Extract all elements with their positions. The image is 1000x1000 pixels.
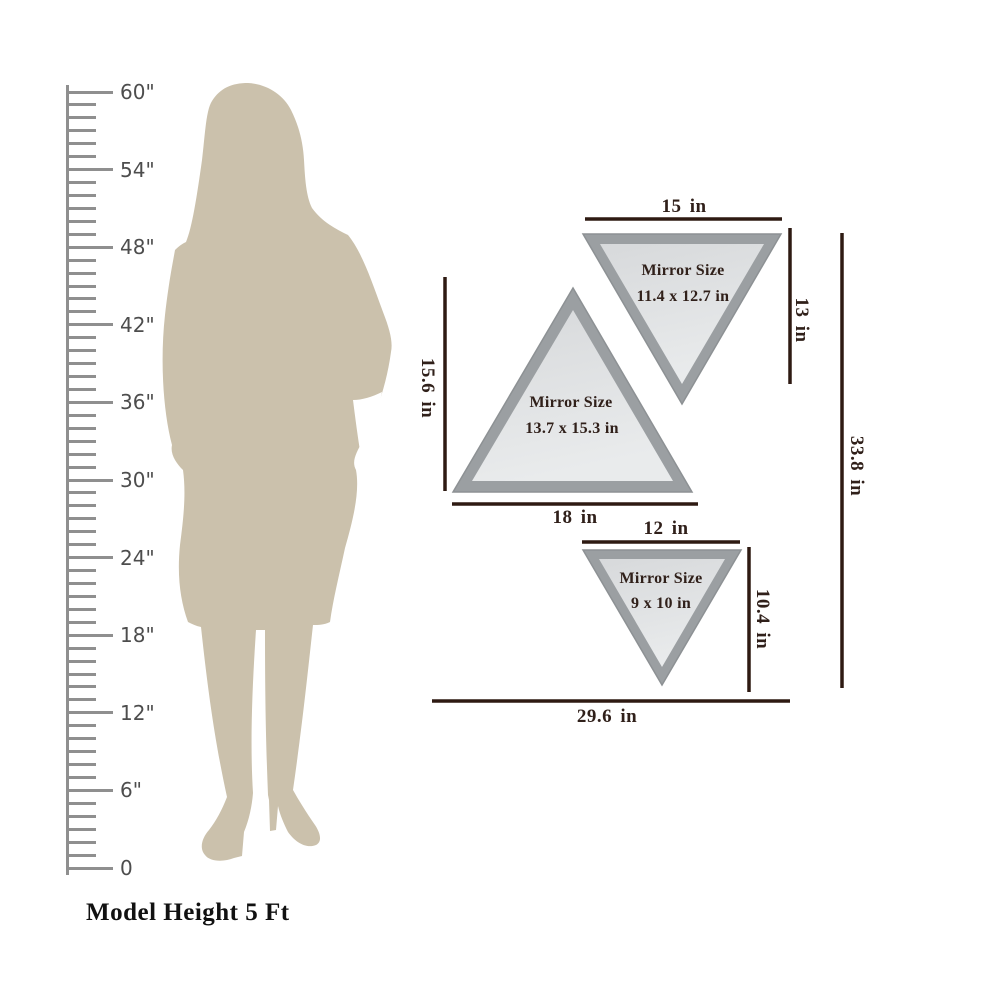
ruler-minor-tick <box>66 621 96 624</box>
ruler-minor-tick <box>66 504 96 507</box>
ruler-minor-tick <box>66 815 96 818</box>
ruler-minor-tick <box>66 698 96 701</box>
dim-label-medium-height: 13 in <box>790 297 812 342</box>
ruler-minor-tick <box>66 802 96 805</box>
ruler-major-tick <box>66 789 113 792</box>
ruler-label: 42" <box>120 312 190 338</box>
ruler-minor-tick <box>66 233 96 236</box>
ruler-minor-tick <box>66 763 96 766</box>
ruler-minor-tick <box>66 595 96 598</box>
ruler-minor-tick <box>66 660 96 663</box>
ruler-minor-tick <box>66 220 96 223</box>
mirror-small-size: 9 x 10 in <box>631 595 691 613</box>
dim-label-overall-height: 33.8 in <box>845 436 867 496</box>
ruler-minor-tick <box>66 737 96 740</box>
ruler-minor-tick <box>66 362 96 365</box>
mirror-medium-size: 11.4 x 12.7 in <box>637 288 730 306</box>
dim-label-small-height: 10.4 in <box>751 589 773 649</box>
ruler-minor-tick <box>66 673 96 676</box>
mirror-large-size: 13.7 x 15.3 in <box>525 420 619 438</box>
ruler-minor-tick <box>66 336 96 339</box>
dim-label-small-width: 12 in <box>643 518 688 540</box>
height-ruler: 60"54"48"42"36"30"24"18"12"6"0 <box>66 88 246 872</box>
ruler-label: 60" <box>120 79 190 105</box>
ruler-minor-tick <box>66 440 96 443</box>
ruler-major-tick <box>66 91 113 94</box>
ruler-minor-tick <box>66 142 96 145</box>
ruler-minor-tick <box>66 854 96 857</box>
ruler-minor-tick <box>66 207 96 210</box>
ruler-major-tick <box>66 634 113 637</box>
dim-label-medium-width: 15 in <box>661 196 706 218</box>
ruler-label: 6" <box>120 777 190 803</box>
ruler-minor-tick <box>66 259 96 262</box>
ruler-major-tick <box>66 168 113 171</box>
ruler-label: 36" <box>120 389 190 415</box>
ruler-minor-tick <box>66 349 96 352</box>
ruler-label: 24" <box>120 545 190 571</box>
ruler-minor-tick <box>66 388 96 391</box>
ruler-label: 18" <box>120 622 190 648</box>
ruler-major-tick <box>66 556 113 559</box>
ruler-minor-tick <box>66 517 96 520</box>
ruler-minor-tick <box>66 608 96 611</box>
ruler-minor-tick <box>66 724 96 727</box>
arm-gap <box>353 392 382 468</box>
ruler-minor-tick <box>66 776 96 779</box>
mirror-large-title: Mirror Size <box>529 394 612 412</box>
ruler-minor-tick <box>66 530 96 533</box>
ruler-major-tick <box>66 323 113 326</box>
ruler-minor-tick <box>66 310 96 313</box>
ruler-minor-tick <box>66 543 96 546</box>
ruler-label: 0 <box>120 855 190 881</box>
ruler-major-tick <box>66 401 113 404</box>
ruler-minor-tick <box>66 582 96 585</box>
ruler-minor-tick <box>66 285 96 288</box>
dim-label-large-height: 15.6 in <box>416 358 438 418</box>
ruler-minor-tick <box>66 647 96 650</box>
ruler-major-tick <box>66 246 113 249</box>
ruler-minor-tick <box>66 116 96 119</box>
ruler-minor-tick <box>66 181 96 184</box>
ruler-minor-tick <box>66 194 96 197</box>
ruler-minor-tick <box>66 491 96 494</box>
ruler-major-tick <box>66 479 113 482</box>
ruler-minor-tick <box>66 414 96 417</box>
ruler-label: 12" <box>120 700 190 726</box>
ruler-minor-tick <box>66 569 96 572</box>
ruler-minor-tick <box>66 375 96 378</box>
ruler-minor-tick <box>66 828 96 831</box>
ruler-minor-tick <box>66 453 96 456</box>
ruler-label: 30" <box>120 467 190 493</box>
ruler-label: 54" <box>120 157 190 183</box>
ruler-minor-tick <box>66 155 96 158</box>
ruler-minor-tick <box>66 103 96 106</box>
ruler-minor-tick <box>66 427 96 430</box>
ruler-major-tick <box>66 867 113 870</box>
ruler-minor-tick <box>66 297 96 300</box>
ruler-minor-tick <box>66 129 96 132</box>
dim-label-large-width: 18 in <box>552 507 597 529</box>
ruler-minor-tick <box>66 685 96 688</box>
ruler-minor-tick <box>66 272 96 275</box>
mirror-small-title: Mirror Size <box>619 570 702 588</box>
model-height-caption: Model Height 5 Ft <box>86 899 290 927</box>
ruler-major-tick <box>66 711 113 714</box>
ruler-minor-tick <box>66 750 96 753</box>
mirror-medium-title: Mirror Size <box>641 262 724 280</box>
ruler-minor-tick <box>66 841 96 844</box>
ruler-minor-tick <box>66 466 96 469</box>
dim-label-overall-width: 29.6 in <box>577 706 637 728</box>
ruler-label: 48" <box>120 234 190 260</box>
mirror-size-chart: 60"54"48"42"36"30"24"18"12"6"0 Model Hei… <box>0 0 1000 1000</box>
